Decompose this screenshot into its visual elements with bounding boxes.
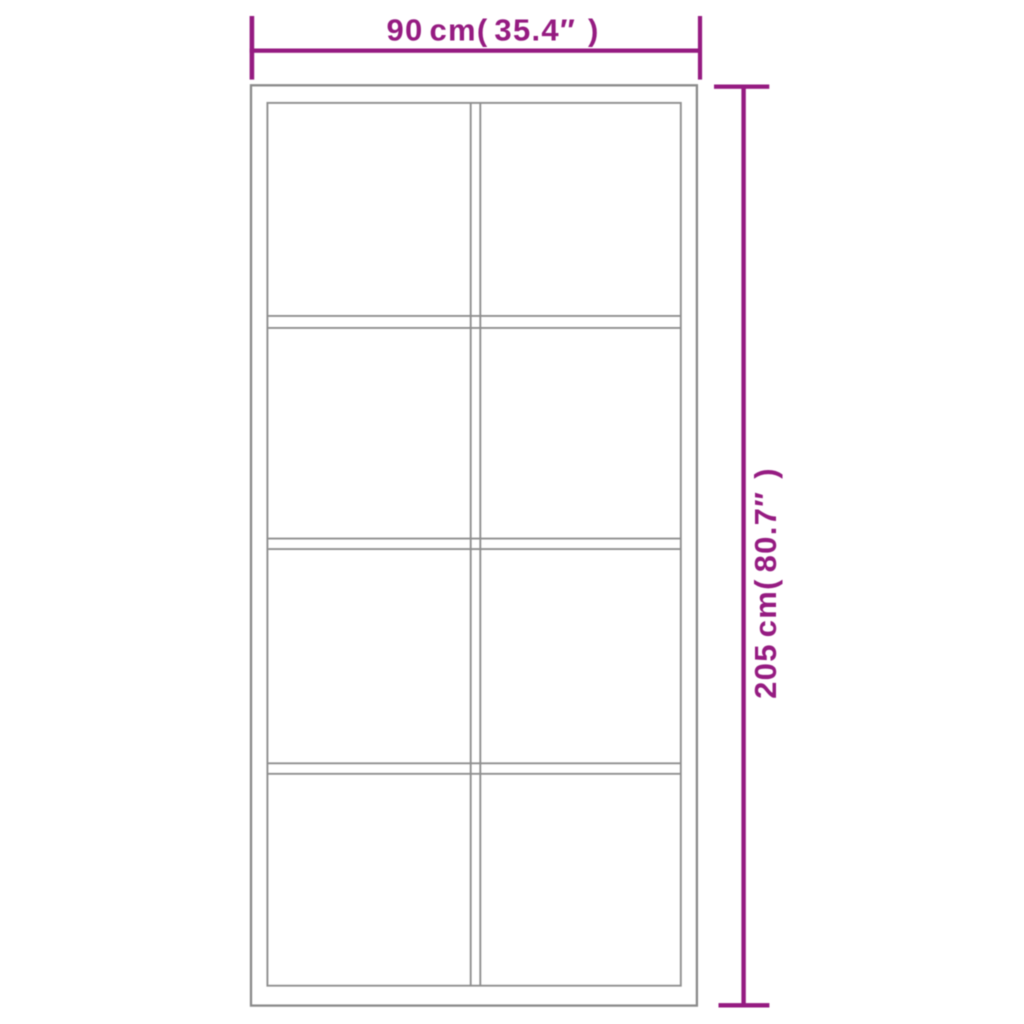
- svg-text:90 cm( 35.4″ ): 90 cm( 35.4″ ): [387, 12, 600, 47]
- svg-text:205 cm( 80.7″ ): 205 cm( 80.7″ ): [748, 467, 783, 699]
